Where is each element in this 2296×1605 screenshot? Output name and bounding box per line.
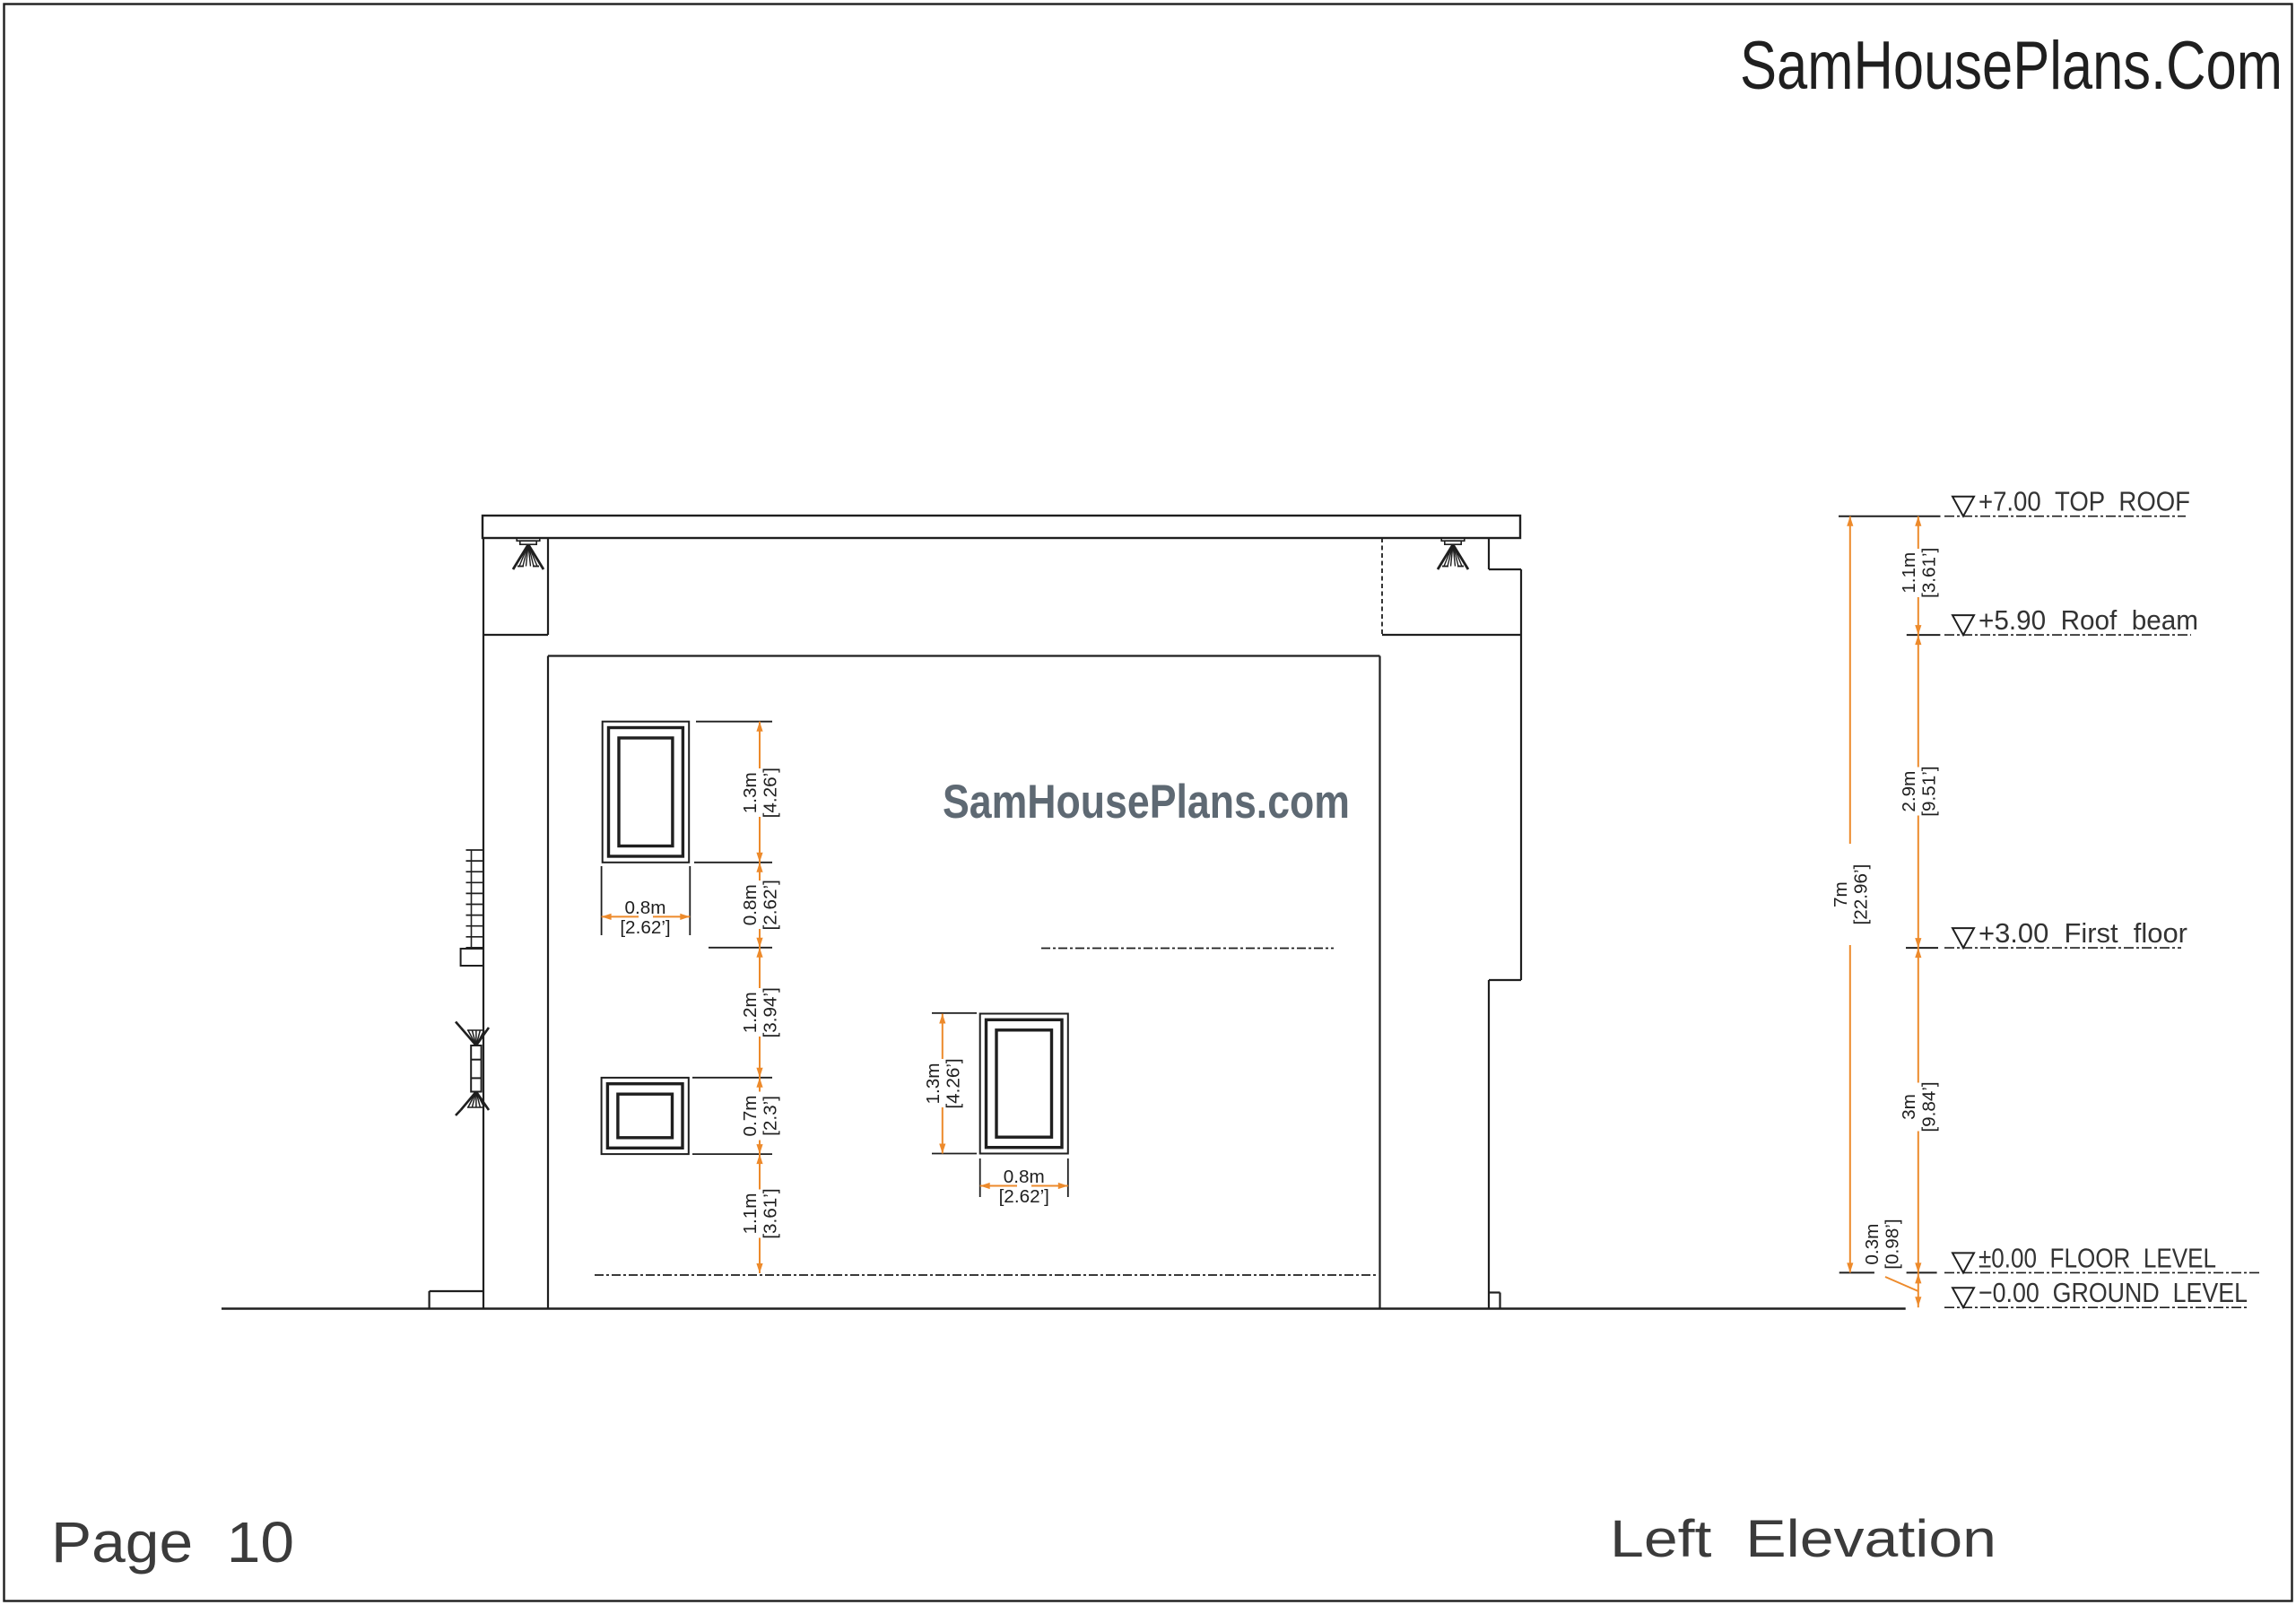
svg-text:0.8m: 0.8m [1004, 1167, 1045, 1187]
svg-text:[9.84’]: [9.84’] [1918, 1081, 1939, 1132]
svg-text:Left Elevation: Left Elevation [1610, 1510, 1996, 1568]
svg-text:[22.96’]: [22.96’] [1850, 864, 1871, 925]
svg-text:2.9m: 2.9m [1899, 771, 1919, 812]
svg-text:1.2m: 1.2m [740, 992, 761, 1033]
svg-text:−0.00 GROUND LEVEL: −0.00 GROUND LEVEL [1979, 1277, 2248, 1308]
svg-text:7m: 7m [1831, 881, 1851, 907]
svg-text:+5.90 Roof beam: +5.90 Roof beam [1979, 604, 2198, 636]
svg-text:[0.98’]: [0.98’] [1883, 1219, 1903, 1269]
svg-text:±0.00 FLOOR LEVEL: ±0.00 FLOOR LEVEL [1979, 1242, 2216, 1273]
svg-text:[3.61’]: [3.61’] [1918, 548, 1939, 598]
svg-text:1.3m: 1.3m [923, 1063, 944, 1105]
svg-text:SamHousePlans.com: SamHousePlans.com [943, 776, 1350, 829]
svg-text:+3.00 First floor: +3.00 First floor [1979, 917, 2187, 949]
svg-text:+7.00 TOP ROOF: +7.00 TOP ROOF [1979, 486, 2190, 517]
svg-text:[2.3’]: [2.3’] [761, 1096, 781, 1136]
svg-text:1.3m: 1.3m [740, 772, 761, 813]
svg-text:Page 10: Page 10 [51, 1510, 294, 1575]
svg-text:0.3m: 0.3m [1862, 1224, 1883, 1265]
svg-text:1.1m: 1.1m [1899, 552, 1919, 594]
svg-text:[2.62’]: [2.62’] [620, 917, 670, 938]
svg-text:[2.62’]: [2.62’] [999, 1186, 1049, 1207]
svg-text:[3.94’]: [3.94’] [761, 987, 781, 1037]
svg-text:0.8m: 0.8m [740, 884, 761, 925]
svg-text:[4.26’]: [4.26’] [761, 768, 781, 818]
svg-text:[2.62’]: [2.62’] [761, 880, 781, 930]
svg-text:SamHousePlans.Com: SamHousePlans.Com [1740, 28, 2283, 104]
svg-text:1.1m: 1.1m [740, 1193, 761, 1235]
svg-text:0.7m: 0.7m [740, 1095, 761, 1136]
svg-text:3m: 3m [1899, 1094, 1919, 1120]
svg-text:0.8m: 0.8m [625, 898, 666, 918]
svg-text:[9.51’]: [9.51’] [1918, 766, 1939, 816]
svg-text:[4.26’]: [4.26’] [943, 1058, 963, 1108]
svg-text:[3.61’]: [3.61’] [761, 1188, 781, 1238]
